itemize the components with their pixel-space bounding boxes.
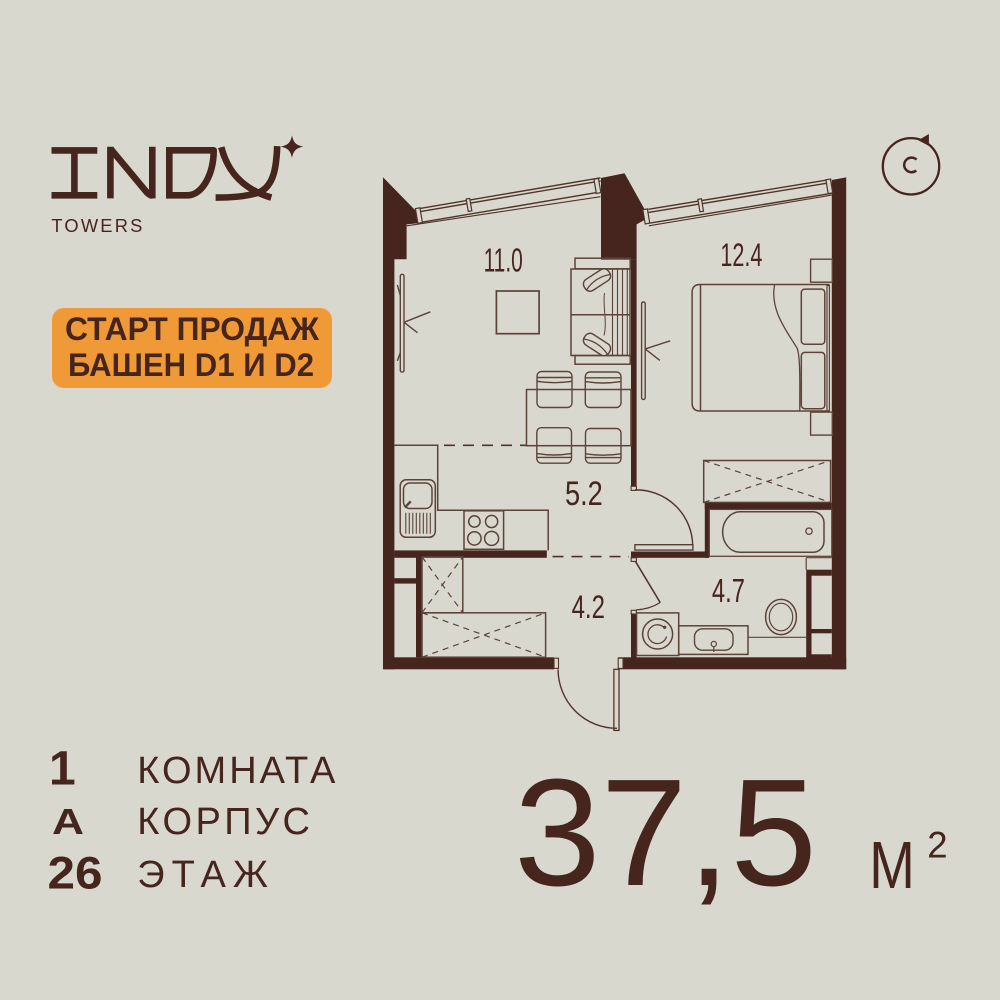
svg-text:КОРПУС: КОРПУС	[137, 801, 310, 843]
svg-text:А: А	[52, 801, 84, 842]
svg-text:2: 2	[927, 824, 947, 865]
svg-text:ЭТАЖ: ЭТАЖ	[137, 854, 268, 896]
svg-text:БАШЕН D1 И D2: БАШЕН D1 И D2	[68, 347, 314, 383]
svg-text:4.7: 4.7	[712, 573, 745, 610]
svg-text:1: 1	[49, 743, 76, 796]
svg-text:11.0: 11.0	[484, 242, 523, 279]
svg-text:М: М	[869, 829, 915, 903]
svg-text:12.4: 12.4	[720, 236, 762, 273]
svg-text:СТАРТ ПРОДАЖ: СТАРТ ПРОДАЖ	[65, 311, 320, 347]
svg-text:TOWERS: TOWERS	[51, 215, 144, 236]
svg-text:КОМНАТА: КОМНАТА	[137, 750, 336, 792]
svg-text:37,5: 37,5	[514, 748, 817, 918]
svg-text:26: 26	[48, 847, 103, 898]
svg-text:4.2: 4.2	[572, 588, 605, 625]
svg-text:5.2: 5.2	[565, 475, 603, 513]
